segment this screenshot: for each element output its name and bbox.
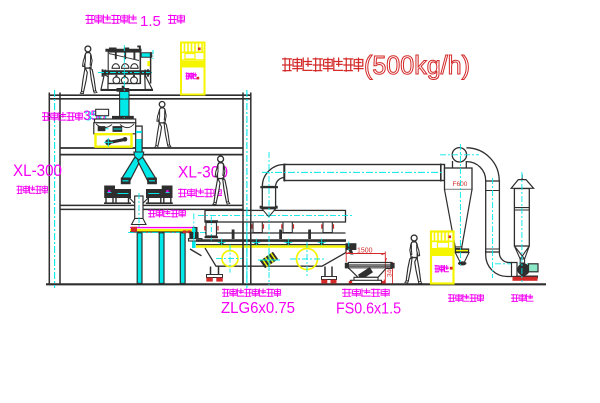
svg-text:ZLG6x0.75: ZLG6x0.75 (221, 300, 295, 317)
svg-text:XL-300: XL-300 (13, 162, 62, 180)
svg-text:FS0.6x1.5: FS0.6x1.5 (336, 301, 401, 318)
svg-text:1.5: 1.5 (140, 13, 161, 30)
svg-text:1500: 1500 (357, 248, 373, 255)
svg-text:(500kg/h): (500kg/h) (364, 50, 470, 80)
